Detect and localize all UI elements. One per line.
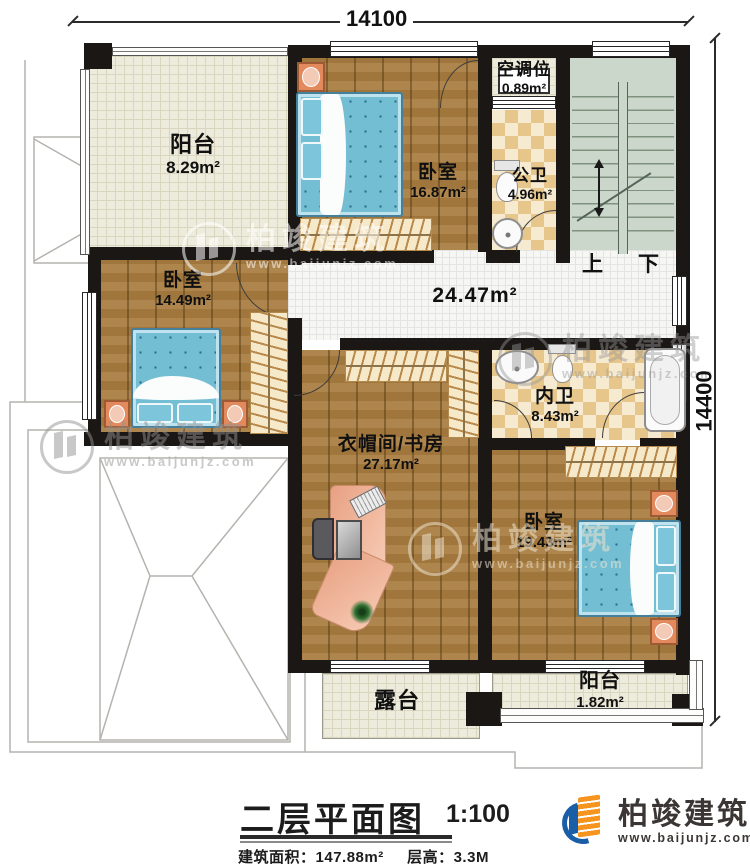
room-name: 露台 [352, 688, 442, 714]
room-area: 1.82m² [545, 694, 655, 712]
brand-url: www.baijunjz.com [618, 831, 750, 845]
room-name: 阳台 [545, 670, 655, 694]
label-bedroom-left: 卧室 14.49m² [128, 270, 238, 310]
label-private-bath: 内卫 8.43m² [505, 386, 605, 426]
brand-name: 柏竣建筑 [618, 799, 750, 831]
toilet-bowl [552, 355, 573, 383]
toilet-tank [548, 344, 576, 354]
plan-title: 二层平面图 [240, 792, 425, 841]
nightstand [104, 400, 130, 428]
floor-height-value: 3.3M [454, 849, 489, 866]
pillow [656, 526, 676, 566]
brand-building-shape-orange [578, 794, 600, 837]
wall-bedroomtop-bottom-b [486, 250, 520, 263]
room-name: 衣帽间/书房 [312, 434, 470, 456]
dimension-top-value: 14100 [340, 6, 413, 32]
balcony-br-railing-right [689, 660, 703, 710]
closet-study-top [345, 350, 447, 382]
window-stairs-top [592, 41, 670, 57]
nightstand [650, 490, 678, 517]
window-ac-bath [492, 96, 556, 109]
label-ac: 空调位 0.89m² [486, 60, 562, 97]
office-chair [312, 518, 334, 560]
window-bedroom-top [330, 41, 478, 57]
post-balcony-tl [84, 43, 112, 69]
balcony-tl-railing-left [80, 69, 90, 255]
brand-logo: 柏竣建筑 www.baijunjz.com [562, 794, 750, 850]
monitor [336, 520, 362, 560]
wardrobe-bedroom-top [300, 218, 432, 251]
sink-private-bath [495, 350, 539, 384]
label-public-bath: 公卫 4.96m² [502, 166, 558, 203]
balcony-tl-railing-top [112, 47, 288, 56]
wall-study-bottom-b [430, 660, 492, 673]
wall-balcony-bedroomleft [88, 247, 302, 260]
bed-fold [320, 94, 346, 215]
wall-study-bottom-a [288, 660, 330, 673]
slidingdoor-terrace [330, 660, 430, 673]
plant [350, 600, 374, 624]
wall-study-right [478, 350, 492, 673]
wardrobe-bedroom-br [565, 446, 677, 478]
stair-up-label: 上 [582, 248, 603, 278]
area-label: 建筑面积： [238, 849, 316, 866]
wall-bedroomleft-bottom [84, 432, 302, 446]
title-underline-thin [240, 841, 452, 843]
room-area: 0.89m² [486, 80, 562, 97]
wall-bedroombr-bottom-a [492, 660, 545, 673]
label-bedroom-top: 卧室 16.87m² [388, 162, 488, 202]
stair-down-label: 下 [638, 248, 659, 278]
nightstand [222, 400, 248, 428]
room-area: 19.43m² [494, 534, 594, 552]
plan-scale: 1:100 [446, 800, 510, 829]
floor-plan: 上 下 阳台 8.29m² 卧室 16.87m² [0, 0, 750, 866]
closet-study-right [448, 350, 479, 438]
room-area: 14.49m² [128, 292, 238, 310]
dimension-right-value: 14400 [692, 364, 718, 437]
wall-hall-bottom-b [340, 338, 688, 350]
room-name: 阳台 [128, 132, 258, 158]
brand-logo-icon [562, 794, 610, 850]
room-area: 4.96m² [502, 186, 558, 203]
pillow [177, 403, 213, 423]
label-bedroom-br: 卧室 19.43m² [494, 512, 594, 552]
label-balcony-tl: 阳台 8.29m² [128, 132, 258, 178]
area-value: 147.88m² [316, 849, 384, 866]
title-underline [240, 835, 452, 839]
nightstand [650, 618, 678, 645]
room-name: 卧室 [494, 512, 594, 534]
sink-public-bath [492, 218, 523, 249]
post-terrace-balcony [466, 692, 502, 726]
pillow [301, 98, 323, 136]
room-area: 24.47m² [420, 284, 530, 309]
window-hall-right [672, 276, 687, 326]
room-name: 空调位 [486, 60, 562, 80]
brand-text: 柏竣建筑 www.baijunjz.com [618, 799, 750, 845]
stair-direction-arrow [598, 162, 600, 214]
room-name: 内卫 [505, 386, 605, 408]
stair-stringer [618, 82, 628, 254]
room-name: 卧室 [128, 270, 238, 292]
bathtub [644, 348, 686, 432]
wall-bedroomtop-bottom-c [556, 250, 570, 263]
room-name: 卧室 [388, 162, 488, 184]
room-name: 公卫 [502, 166, 558, 186]
floor-height-label: 层高： [407, 849, 454, 866]
pillow [137, 403, 173, 423]
label-hall: 24.47m² [420, 284, 530, 309]
label-balcony-br: 阳台 1.82m² [545, 670, 655, 711]
pillow [656, 572, 676, 612]
plan-meta: 建筑面积：147.88m² 层高：3.3M [238, 846, 489, 866]
room-area: 27.17m² [312, 456, 470, 474]
window-bedroom-left [82, 292, 97, 420]
bed-fold [630, 522, 654, 615]
pillow [301, 142, 323, 180]
room-area: 8.29m² [128, 158, 258, 178]
room-area: 16.87m² [388, 184, 488, 202]
nightstand [297, 62, 325, 92]
label-study: 衣帽间/书房 27.17m² [312, 434, 470, 474]
room-area: 8.43m² [505, 408, 605, 426]
wardrobe-bedroom-left [250, 312, 288, 434]
wall-bedroomtop-bottom-a [288, 250, 434, 263]
label-terrace: 露台 [352, 688, 442, 714]
brand-building-shape-blue [569, 805, 578, 835]
